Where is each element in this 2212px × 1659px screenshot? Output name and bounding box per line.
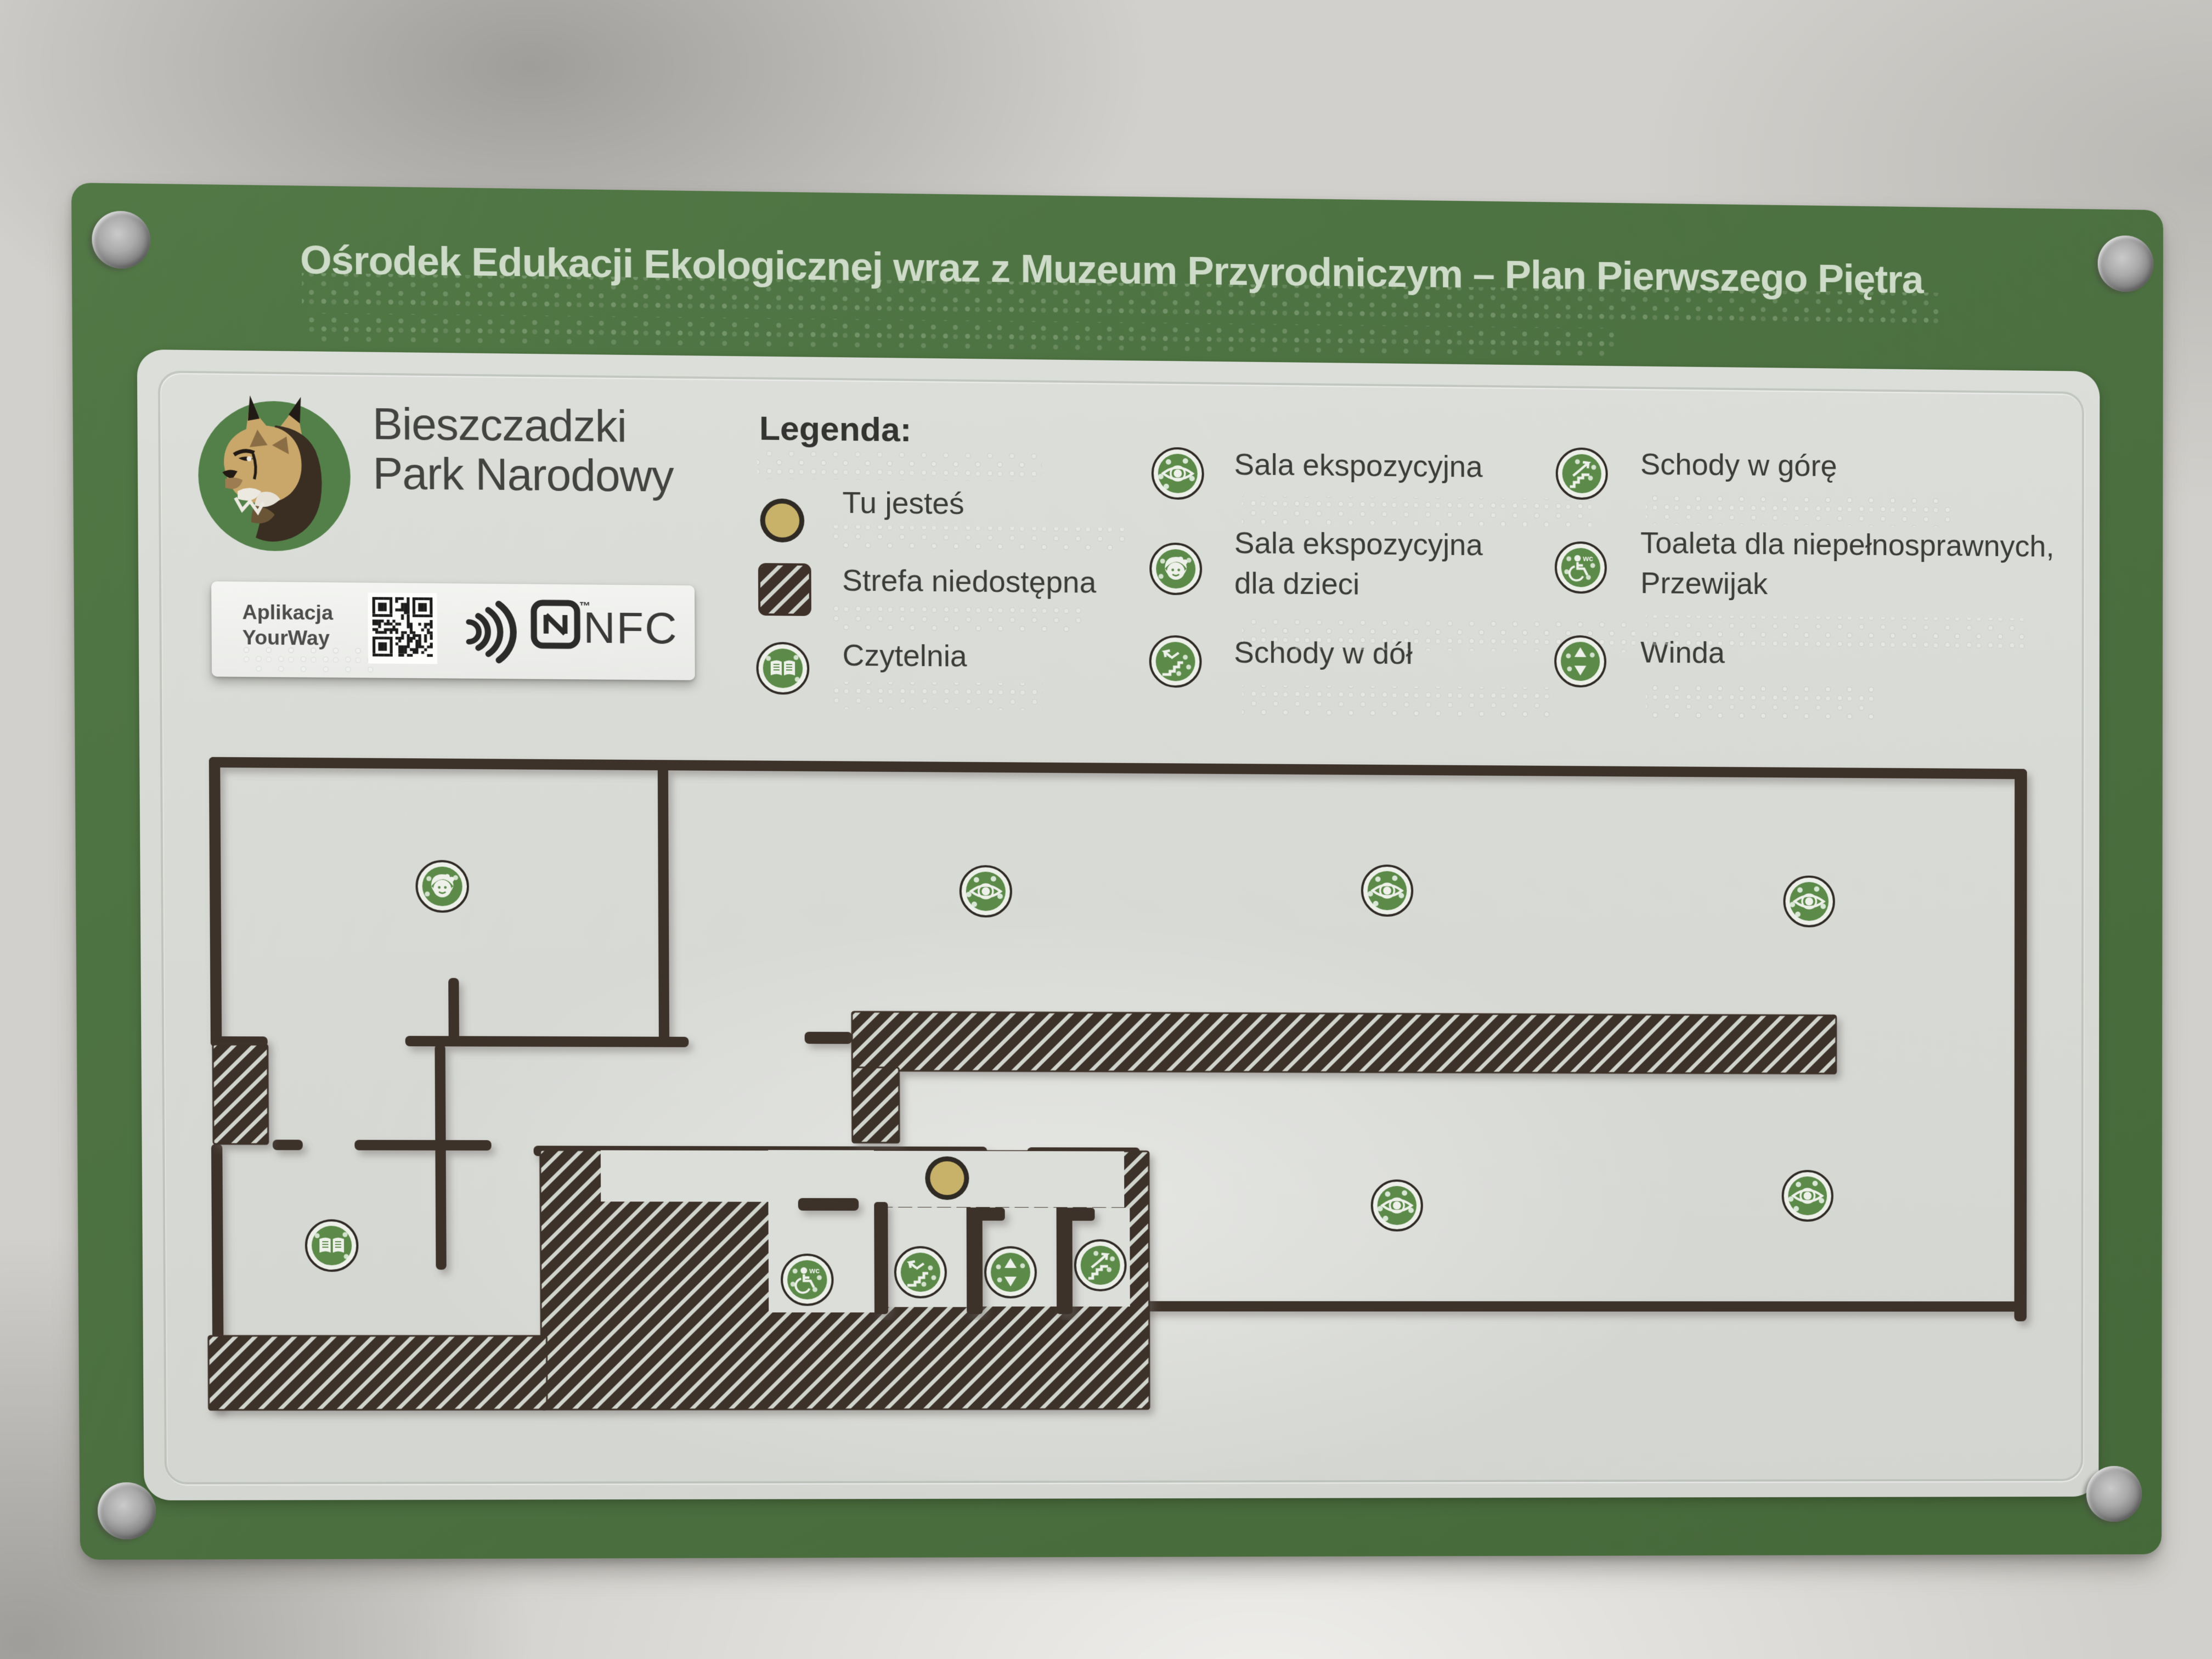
svg-text:™: ™ bbox=[579, 601, 590, 613]
